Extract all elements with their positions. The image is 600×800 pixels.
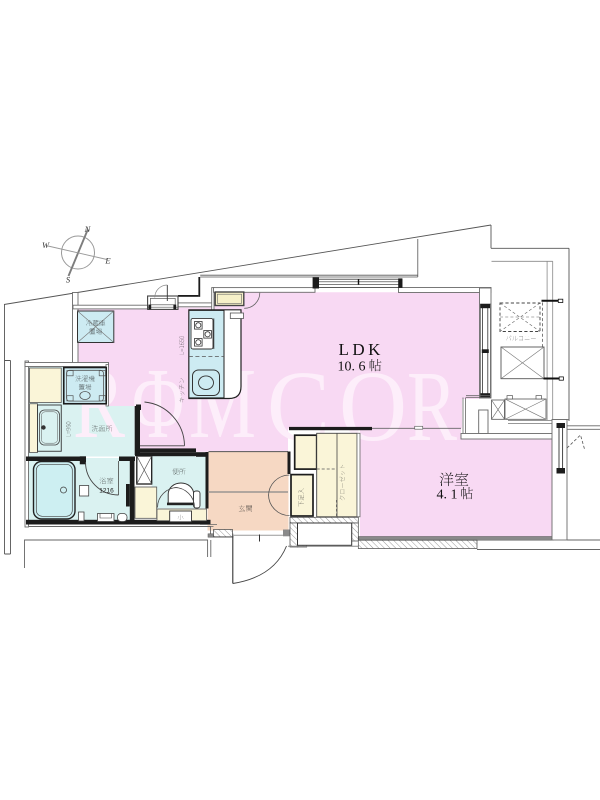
svg-text:10. 6: 10. 6: [338, 360, 366, 375]
svg-text:LDK: LDK: [339, 340, 384, 359]
svg-text:4. 1: 4. 1: [437, 488, 458, 503]
svg-text:1216: 1216: [99, 488, 114, 495]
svg-text:S: S: [66, 275, 71, 285]
svg-text:R: R: [407, 350, 457, 462]
svg-text:E: E: [104, 256, 111, 266]
svg-text:W: W: [42, 240, 50, 250]
svg-text:N: N: [84, 224, 92, 234]
